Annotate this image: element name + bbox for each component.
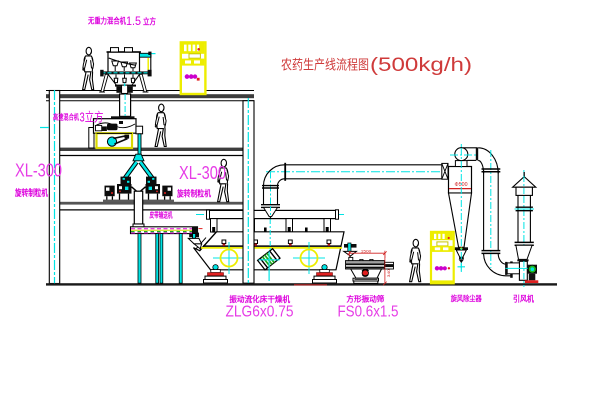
svg-text:高速混合机: 高速混合机 xyxy=(53,112,79,122)
svg-text:XL-300: XL-300 xyxy=(15,160,62,181)
svg-text:立方: 立方 xyxy=(143,17,156,27)
svg-text:FS0.6x1.5: FS0.6x1.5 xyxy=(338,304,399,321)
svg-text:1.5: 1.5 xyxy=(126,14,141,28)
svg-text:XL-300: XL-300 xyxy=(179,162,226,183)
svg-text:ZLG6x0.75: ZLG6x0.75 xyxy=(226,304,294,321)
svg-text:振动流化床干燥机: 振动流化床干燥机 xyxy=(229,294,290,304)
svg-text:(500kg/h): (500kg/h) xyxy=(370,54,472,76)
svg-text:无重力混合机: 无重力混合机 xyxy=(87,16,126,26)
svg-text:3立方: 3立方 xyxy=(80,110,104,125)
svg-text:皮带输送机: 皮带输送机 xyxy=(149,210,173,220)
svg-text:引风机: 引风机 xyxy=(513,294,534,304)
svg-text:340: 340 xyxy=(386,268,391,277)
svg-text:农药生产线流程图: 农药生产线流程图 xyxy=(281,58,369,73)
svg-text:旋转制粒机: 旋转制粒机 xyxy=(14,187,48,198)
svg-text:旋风除尘器: 旋风除尘器 xyxy=(450,293,482,303)
svg-text:1500: 1500 xyxy=(361,248,372,253)
svg-text:方形振动筛: 方形振动筛 xyxy=(346,294,385,304)
svg-text:旋转制粒机: 旋转制粒机 xyxy=(176,189,211,199)
